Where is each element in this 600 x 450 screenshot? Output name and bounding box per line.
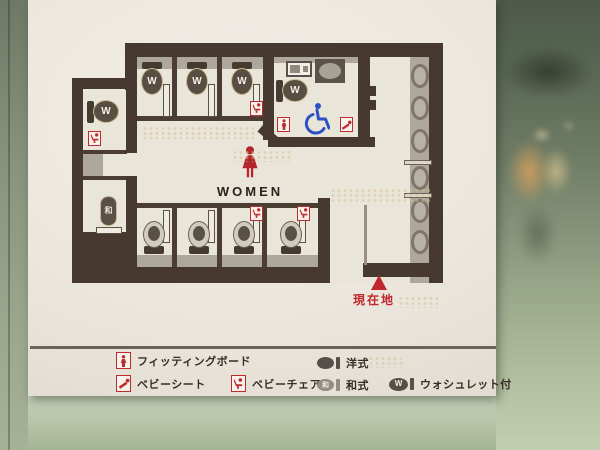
legend-baby-sheet: ベビーシート	[116, 375, 206, 392]
baby-chair-icon	[250, 206, 263, 221]
sink-icon	[411, 129, 429, 153]
wall-segment	[358, 57, 370, 147]
baby-sheet-icon	[116, 375, 131, 392]
japanese-toilet-letter: 和	[322, 382, 329, 389]
washlet-letter: W	[192, 77, 201, 87]
washlet-toilet-icon: W	[141, 62, 163, 95]
wall-segment	[125, 43, 443, 57]
current-location-label: 現在地	[344, 291, 404, 308]
western-toilet-icon	[280, 221, 302, 254]
fitting-board-icon	[277, 117, 290, 132]
washlet-toilet-icon: W	[87, 100, 119, 123]
entrance-rail	[364, 205, 367, 265]
legend-baby-chair: ベビーチェア	[231, 375, 321, 392]
washlet-toilet-icon: W	[389, 378, 408, 391]
partition-wall	[83, 176, 127, 180]
washlet-toilet-icon: W	[231, 62, 253, 95]
legend-fitting-board: フィッティングボード	[116, 352, 251, 369]
legend-japanese-style: 和 和式	[317, 377, 369, 393]
wall-segment	[130, 267, 330, 283]
legend-western-style: 洋式	[317, 355, 369, 371]
background-left-glass	[0, 0, 28, 450]
toilet-tank-icon	[336, 379, 340, 391]
washlet-letter: W	[237, 77, 246, 87]
background-below-sign	[28, 394, 496, 450]
entrance-floor	[330, 263, 366, 279]
washlet-letter: W	[395, 380, 403, 388]
partition-wall	[217, 57, 222, 120]
washlet-letter: W	[101, 107, 110, 117]
washlet-toilet-icon: W	[186, 62, 208, 95]
partition-wall	[172, 57, 177, 120]
toilet-tank-icon	[336, 357, 340, 369]
washlet-letter: W	[290, 86, 299, 96]
washlet-toilet-icon: W	[276, 79, 308, 102]
western-toilet-icon	[317, 357, 334, 369]
stall-back-ledge	[137, 255, 318, 267]
western-toilet-icon	[233, 221, 255, 254]
legend-label: ベビーチェア	[252, 376, 321, 392]
wall-segment	[318, 198, 330, 283]
sink-icon	[411, 64, 429, 88]
legend-washlet: W ウォシュレット付	[389, 376, 512, 392]
partition-wall	[137, 116, 263, 121]
large-basin-icon	[315, 59, 345, 83]
legend-divider	[30, 346, 496, 349]
restroom-map-photo: W W W W W 和	[0, 0, 600, 450]
wheelchair-icon	[300, 102, 330, 136]
legend-label: ベビーシート	[137, 376, 206, 392]
legend-label: ウォシュレット付	[420, 376, 512, 392]
japanese-toilet-icon: 和	[317, 379, 334, 391]
legend-label: 洋式	[346, 355, 369, 371]
wall-segment	[126, 176, 137, 267]
baby-chair-icon	[297, 206, 310, 221]
partition-wall	[137, 203, 318, 208]
legend-label: フィッティングボード	[137, 353, 251, 369]
braille-dots	[142, 126, 254, 139]
japanese-toilet-icon: 和	[100, 196, 117, 226]
sink-icon	[411, 96, 429, 120]
braille-dots	[232, 150, 292, 162]
western-toilet-icon	[188, 221, 210, 254]
baby-chair-icon	[250, 101, 263, 116]
partition-wall	[172, 203, 177, 267]
wall-segment	[126, 88, 137, 153]
utility-closet	[83, 154, 103, 176]
western-toilet-icon	[143, 221, 165, 254]
sink-icon	[411, 166, 429, 190]
baby-chair-icon	[88, 131, 101, 146]
current-location-marker	[371, 275, 387, 290]
partition-wall	[83, 150, 127, 154]
baby-chair-icon	[231, 375, 246, 392]
legend-label: 和式	[346, 377, 369, 393]
door-hinge	[370, 86, 376, 96]
washlet-letter: W	[147, 77, 156, 87]
sink-icon	[411, 230, 429, 254]
door-swing	[96, 227, 122, 234]
fitting-board-icon	[116, 352, 131, 369]
door-swing	[163, 84, 170, 117]
partition-wall	[217, 203, 222, 267]
area-label: WOMEN	[205, 184, 295, 199]
door-swing	[208, 84, 215, 117]
braille-dots	[330, 188, 430, 204]
toilet-tank-icon	[410, 378, 414, 390]
braille-dots	[398, 296, 438, 308]
baby-sheet-icon	[340, 117, 353, 132]
japanese-toilet-letter: 和	[105, 207, 113, 215]
counter-divider	[404, 160, 432, 165]
door-hinge	[370, 100, 376, 110]
changing-table-icon	[286, 61, 312, 77]
braille-dots	[368, 356, 402, 368]
